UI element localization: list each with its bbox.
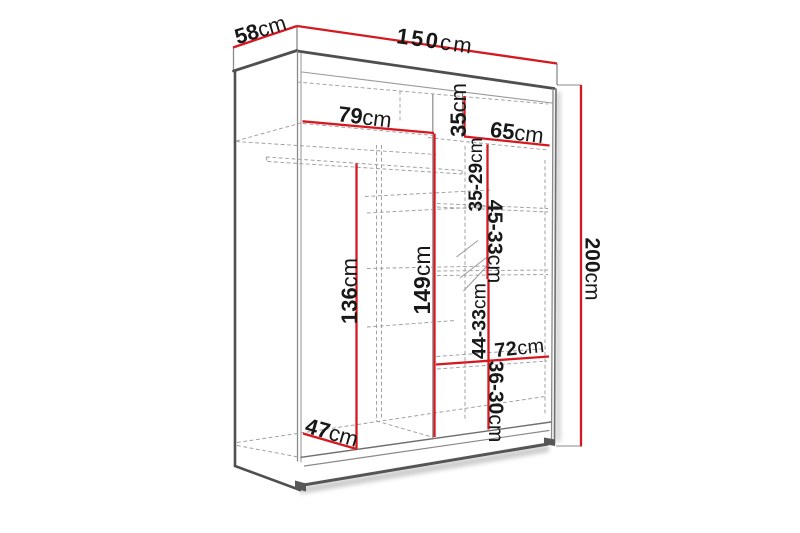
svg-text:136cm: 136cm: [337, 258, 362, 324]
svg-text:45-33cm: 45-33cm: [483, 200, 507, 284]
svg-text:200cm: 200cm: [581, 237, 604, 300]
svg-text:36-30cm: 36-30cm: [485, 361, 508, 443]
svg-text:44-33cm: 44-33cm: [469, 283, 491, 359]
svg-text:149cm: 149cm: [409, 245, 435, 314]
svg-text:35cm: 35cm: [446, 83, 471, 137]
